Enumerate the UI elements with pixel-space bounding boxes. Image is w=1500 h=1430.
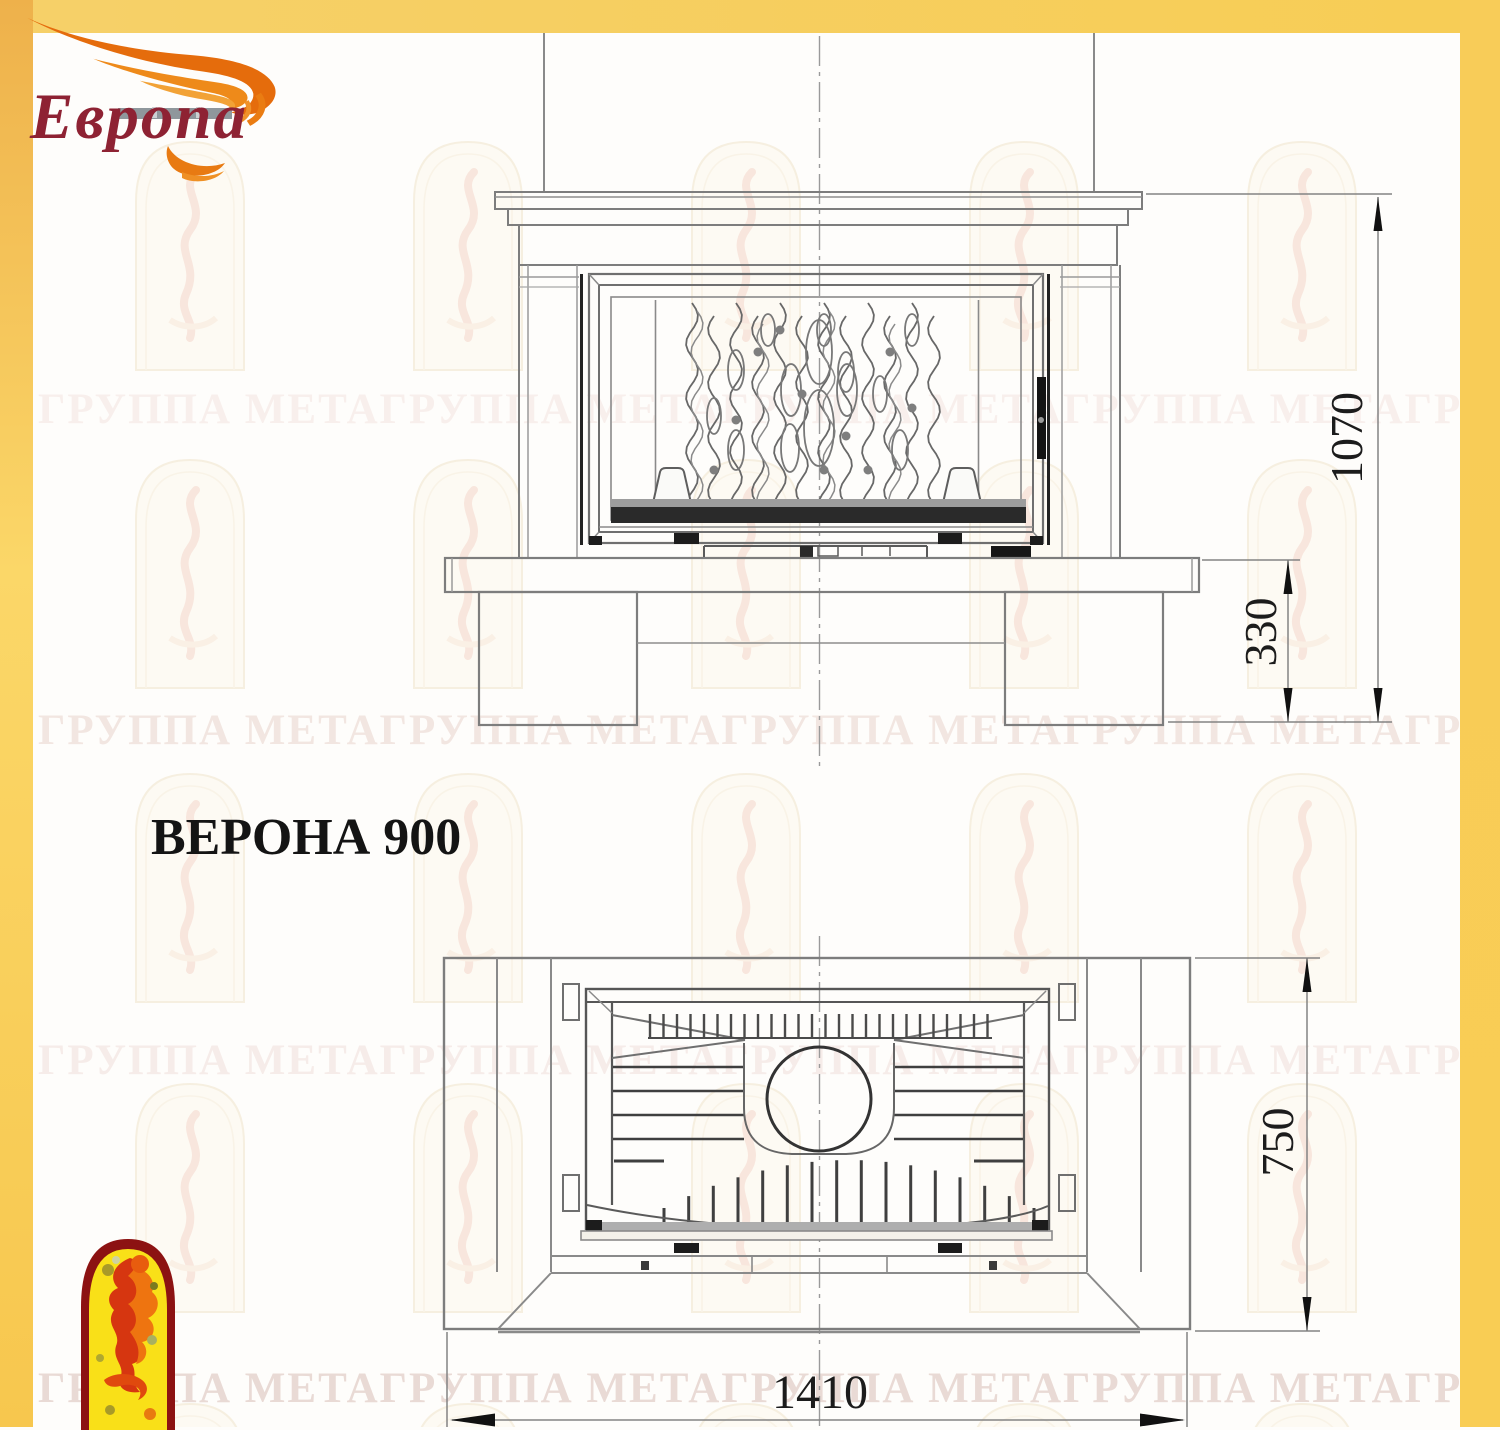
svg-text:330: 330 (1235, 598, 1286, 667)
svg-text:750: 750 (1252, 1108, 1303, 1177)
svg-text:Европа: Европа (29, 81, 248, 153)
svg-text:1410: 1410 (772, 1366, 868, 1419)
svg-text:1070: 1070 (1321, 392, 1372, 484)
